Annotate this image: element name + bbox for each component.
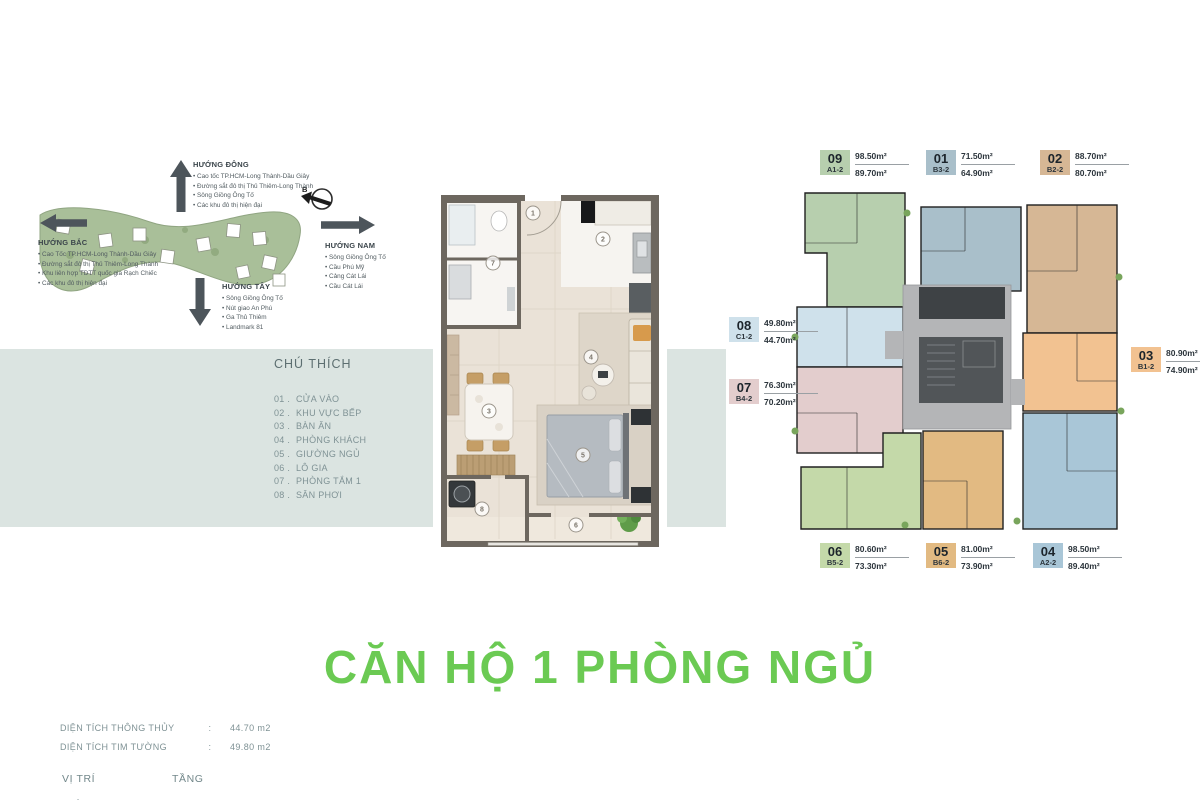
- unit-label-05: 05 B6-2 81.00m² 73.90m²: [926, 543, 1015, 571]
- legend-num: 02 .: [274, 407, 296, 421]
- direction-south-list: Sông Giồng Ông Tố Cầu Phú Mỹ Cảng Cát Lá…: [325, 253, 386, 291]
- direction-item: Cầu Cát Lái: [325, 282, 386, 292]
- unit-number: 02: [1043, 152, 1067, 165]
- unit-code: B2-2: [1043, 165, 1067, 174]
- colon: :: [202, 742, 218, 752]
- unit-badge: 09 A1-2: [820, 150, 850, 175]
- bench: [457, 455, 515, 475]
- unit-area-net: 64.90m²: [961, 168, 1015, 178]
- direction-item: Sông Giồng Ông Tố: [325, 253, 386, 263]
- direction-item: Đường sắt đô thị Thủ Thiêm-Long Thành: [193, 182, 313, 192]
- area-label: DIỆN TÍCH TIM TƯỜNG: [60, 742, 202, 752]
- unit-badge: 08 C1-2: [729, 317, 759, 342]
- legend-title: CHÚ THÍCH: [274, 357, 352, 371]
- area-thong-thuy: DIỆN TÍCH THÔNG THỦY:44.70 m2: [60, 723, 271, 733]
- bedroom: [537, 405, 655, 505]
- svg-text:8: 8: [480, 507, 484, 514]
- arrow-west-icon: [189, 278, 211, 326]
- unit-label-09: 09 A1-2 98.50m² 89.70m²: [820, 150, 909, 178]
- direction-item: Cao Tốc TP.HCM-Long Thành-Dầu Giây: [38, 250, 158, 260]
- unit-area-gross: 76.30m²: [764, 380, 818, 394]
- unit-code: B6-2: [929, 558, 953, 567]
- core-block: [919, 287, 1005, 319]
- unit-shape-03: [1023, 333, 1117, 411]
- unit-areas: 76.30m² 70.20m²: [764, 379, 818, 407]
- pillow: [609, 419, 621, 451]
- direction-item: Cầu Phú Mỹ: [325, 263, 386, 273]
- unit-code: B3-2: [929, 165, 953, 174]
- bathroom: [445, 201, 519, 327]
- tower-floor-plate: [787, 181, 1141, 537]
- legend-label: CỬA VÀO: [296, 394, 339, 404]
- legend-label: LÔ GIA: [296, 463, 328, 473]
- direction-west: HƯỚNG TÂY Sông Giồng Ông Tố Nút giao An …: [222, 282, 283, 332]
- unit-number: 09: [823, 152, 847, 165]
- direction-item: Khu liên hợp TDTT quốc gia Rạch Chiếc: [38, 269, 158, 279]
- unit-code: B1-2: [1134, 362, 1158, 371]
- stove: [581, 199, 595, 223]
- unit-area-net: 44.70m²: [764, 335, 818, 345]
- direction-item: Landmark 81: [222, 323, 283, 333]
- unit-area-gross: 80.60m²: [855, 544, 909, 558]
- legend-label: GIƯỜNG NGỦ: [296, 449, 360, 459]
- direction-west-title: HƯỚNG TÂY: [222, 282, 283, 291]
- page-title: CĂN HỘ 1 PHÒNG NGỦ: [0, 640, 1200, 694]
- unit-area-gross: 71.50m²: [961, 151, 1015, 165]
- legend-label: BÀN ĂN: [296, 421, 331, 431]
- balcony-window: [488, 543, 638, 546]
- unit-badge: 06 B5-2: [820, 543, 850, 568]
- direction-south: HƯỚNG NAM Sông Giồng Ông Tố Cầu Phú Mỹ C…: [325, 241, 386, 291]
- unit-number: 07: [732, 381, 756, 394]
- unit-label-02: 02 B2-2 88.70m² 80.70m²: [1040, 150, 1129, 178]
- unit-areas: 98.50m² 89.70m²: [855, 150, 909, 178]
- unit-code: B4-2: [732, 394, 756, 403]
- marker-bathroom: 7: [486, 256, 500, 270]
- unit-area-net: 73.90m²: [961, 561, 1015, 571]
- unit-number: 03: [1134, 349, 1158, 362]
- apartment-floor-plan: 1 2 3 4 5 6 7 8: [433, 187, 667, 565]
- shower: [449, 205, 475, 245]
- unit-badge: 07 B4-2: [729, 379, 759, 404]
- unit-area-net: 89.70m²: [855, 168, 909, 178]
- unit-area-gross: 49.80m²: [764, 318, 818, 332]
- marker-laundry: 8: [475, 502, 489, 516]
- svg-text:1: 1: [531, 211, 535, 218]
- svg-text:3: 3: [487, 409, 491, 416]
- arrow-south-icon: [321, 216, 375, 234]
- unit-number: 08: [732, 319, 756, 332]
- unit-badge: 04 A2-2: [1033, 543, 1063, 568]
- unit-areas: 80.60m² 73.30m²: [855, 543, 909, 571]
- unit-label-08: 08 C1-2 49.80m² 44.70m²: [729, 317, 818, 345]
- direction-east-list: Cao tốc TP.HCM-Long Thành-Dầu Giây Đường…: [193, 172, 313, 210]
- direction-item: Sông Giồng Ông Tố: [222, 294, 283, 304]
- unit-number: 01: [929, 152, 953, 165]
- unit-shape-02: [1027, 205, 1117, 333]
- legend-item: 07 .PHÒNG TẮM 1: [274, 475, 366, 489]
- legend-num: 06 .: [274, 462, 296, 476]
- legend-num: 04 .: [274, 434, 296, 448]
- vanity-sink: [449, 265, 471, 299]
- legend-label: PHÒNG KHÁCH: [296, 435, 366, 445]
- legend-item: 08 .SÂN PHƠI: [274, 489, 366, 503]
- direction-item: Cảng Cát Lái: [325, 272, 386, 282]
- unit-area-gross: 98.50m²: [855, 151, 909, 165]
- direction-west-list: Sông Giồng Ông Tố Nút giao An Phú Ga Thủ…: [222, 294, 283, 332]
- corridor-arm: [885, 331, 903, 359]
- legend-item: 05 .GIƯỜNG NGỦ: [274, 448, 366, 462]
- unit-code: A2-2: [1036, 558, 1060, 567]
- unit-number: 06: [823, 545, 847, 558]
- unit-area-net: 73.30m²: [855, 561, 909, 571]
- unit-label-04: 04 A2-2 98.50m² 89.40m²: [1033, 543, 1122, 571]
- legend-item: 01 .CỬA VÀO: [274, 393, 366, 407]
- unit-label-03: 03 B1-2 80.90m² 74.90m²: [1131, 347, 1200, 375]
- svg-text:4: 4: [589, 355, 593, 362]
- unit-shape-09: [805, 193, 905, 307]
- unit-label-06: 06 B5-2 80.60m² 73.30m²: [820, 543, 909, 571]
- unit-badge: 05 B6-2: [926, 543, 956, 568]
- core-stairs: [919, 337, 1003, 403]
- unit-area-gross: 98.50m²: [1068, 544, 1122, 558]
- direction-east: HƯỚNG ĐÔNG Cao tốc TP.HCM-Long Thành-Dầu…: [193, 160, 313, 210]
- unit-badge: 03 B1-2: [1131, 347, 1161, 372]
- unit-area-gross: 81.00m²: [961, 544, 1015, 558]
- towel-rack: [507, 287, 515, 311]
- legend-num: 03 .: [274, 420, 296, 434]
- chair: [582, 386, 596, 400]
- living-area: [579, 313, 657, 419]
- unit-number: 05: [929, 545, 953, 558]
- unit-areas: 71.50m² 64.90m²: [961, 150, 1015, 178]
- direction-item: Các khu đô thị hiện đại: [193, 201, 313, 211]
- direction-item: Nút giao An Phú: [222, 304, 283, 314]
- svg-text:6: 6: [574, 523, 578, 530]
- brochure-page: DIỆN TÍCH THÔNG THỦY:44.70 m2 DIỆN TÍCH …: [0, 0, 1200, 800]
- unit-area-gross: 88.70m²: [1075, 151, 1129, 165]
- toilet: [491, 211, 507, 231]
- unit-shape-01: [921, 207, 1021, 291]
- unit-areas: 81.00m² 73.90m²: [961, 543, 1015, 571]
- unit-number: 04: [1036, 545, 1060, 558]
- area-label: DIỆN TÍCH THÔNG THỦY: [60, 723, 202, 733]
- nightstand: [631, 409, 653, 425]
- arrow-east-icon: [170, 160, 192, 212]
- direction-item: Sông Giồng Ông Tố: [193, 191, 313, 201]
- unit-code: C1-2: [732, 332, 756, 341]
- corridor-arm: [1011, 379, 1025, 405]
- unit-area-gross: 80.90m²: [1166, 348, 1200, 362]
- nightstand: [631, 487, 653, 503]
- legend-label: PHÒNG TẮM 1: [296, 476, 361, 486]
- legend-num: 05 .: [274, 448, 296, 462]
- direction-north-title: HƯỚNG BẮC: [38, 238, 158, 247]
- col-header-vitri: VỊ TRÍ: [62, 773, 95, 785]
- sofa-throw: [633, 325, 651, 341]
- legend-item: 06 .LÔ GIA: [274, 462, 366, 476]
- unit-area-net: 80.70m²: [1075, 168, 1129, 178]
- legend-num: 01 .: [274, 393, 296, 407]
- legend-label: KHU VỰC BẾP: [296, 408, 362, 418]
- direction-north-list: Cao Tốc TP.HCM-Long Thành-Dầu Giây Đường…: [38, 250, 158, 288]
- laundry-area: [449, 481, 475, 507]
- unit-areas: 98.50m² 89.40m²: [1068, 543, 1122, 571]
- col-header-tang: TẦNG: [172, 773, 204, 785]
- marker-dining: 3: [482, 404, 496, 418]
- legend-item: 03 .BÀN ĂN: [274, 420, 366, 434]
- unit-badge: 02 B2-2: [1040, 150, 1070, 175]
- legend-list: 01 .CỬA VÀO 02 .KHU VỰC BẾP 03 .BÀN ĂN 0…: [274, 393, 366, 503]
- marker-balcony: 6: [569, 518, 583, 532]
- area-tim-tuong: DIỆN TÍCH TIM TƯỜNG:49.80 m2: [60, 742, 271, 752]
- legend-item: 04 .PHÒNG KHÁCH: [274, 434, 366, 448]
- svg-text:5: 5: [581, 453, 585, 460]
- area-value: 49.80 m2: [230, 742, 271, 752]
- kitchen-counter: [595, 201, 651, 225]
- legend-label: SÂN PHƠI: [296, 490, 342, 500]
- marker-bedroom: 5: [576, 448, 590, 462]
- unit-area-net: 70.20m²: [764, 397, 818, 407]
- unit-badge: 01 B3-2: [926, 150, 956, 175]
- direction-south-title: HƯỚNG NAM: [325, 241, 386, 250]
- unit-label-07: 07 B4-2 76.30m² 70.20m²: [729, 379, 818, 407]
- direction-item: Các khu đô thị hiện đại: [38, 279, 158, 289]
- direction-north: HƯỚNG BẮC Cao Tốc TP.HCM-Long Thành-Dầu …: [38, 238, 158, 288]
- unit-areas: 80.90m² 74.90m²: [1166, 347, 1200, 375]
- direction-item: Đường sắt đô thị Thủ Thiêm-Long Thành: [38, 260, 158, 270]
- legend-item: 02 .KHU VỰC BẾP: [274, 407, 366, 421]
- legend-num: 08 .: [274, 489, 296, 503]
- pillow: [609, 461, 621, 493]
- marker-entrance: 1: [526, 206, 540, 220]
- svg-text:2: 2: [601, 237, 605, 244]
- svg-text:7: 7: [491, 261, 495, 268]
- colon: :: [202, 723, 218, 733]
- unit-code: A1-2: [823, 165, 847, 174]
- unit-shape-05: [923, 431, 1003, 529]
- marker-living: 4: [584, 350, 598, 364]
- marker-kitchen: 2: [596, 232, 610, 246]
- unit-area-net: 89.40m²: [1068, 561, 1122, 571]
- unit-area-net: 74.90m²: [1166, 365, 1200, 375]
- headboard: [623, 413, 629, 499]
- direction-item: Ga Thủ Thiêm: [222, 313, 283, 323]
- unit-label-01: 01 B3-2 71.50m² 64.90m²: [926, 150, 1015, 178]
- unit-areas: 49.80m² 44.70m²: [764, 317, 818, 345]
- unit-code: B5-2: [823, 558, 847, 567]
- legend-num: 07 .: [274, 475, 296, 489]
- unit-areas: 88.70m² 80.70m²: [1075, 150, 1129, 178]
- area-value: 44.70 m2: [230, 723, 271, 733]
- direction-east-title: HƯỚNG ĐÔNG: [193, 160, 313, 169]
- direction-item: Cao tốc TP.HCM-Long Thành-Dầu Giây: [193, 172, 313, 182]
